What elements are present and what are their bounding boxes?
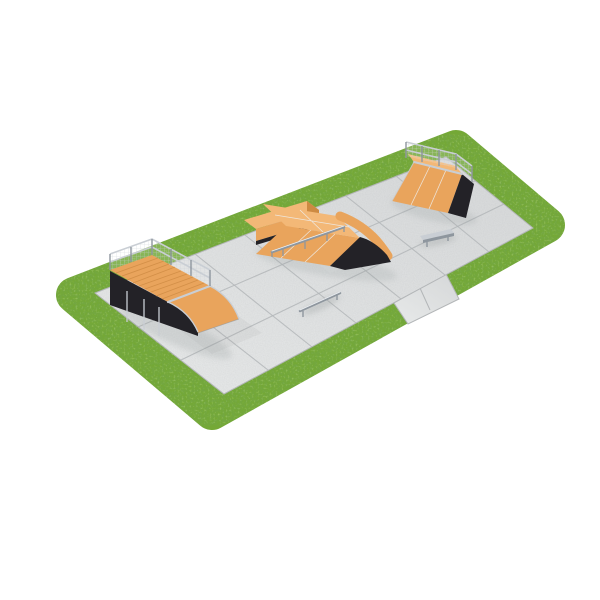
skatepark-render bbox=[0, 0, 600, 600]
